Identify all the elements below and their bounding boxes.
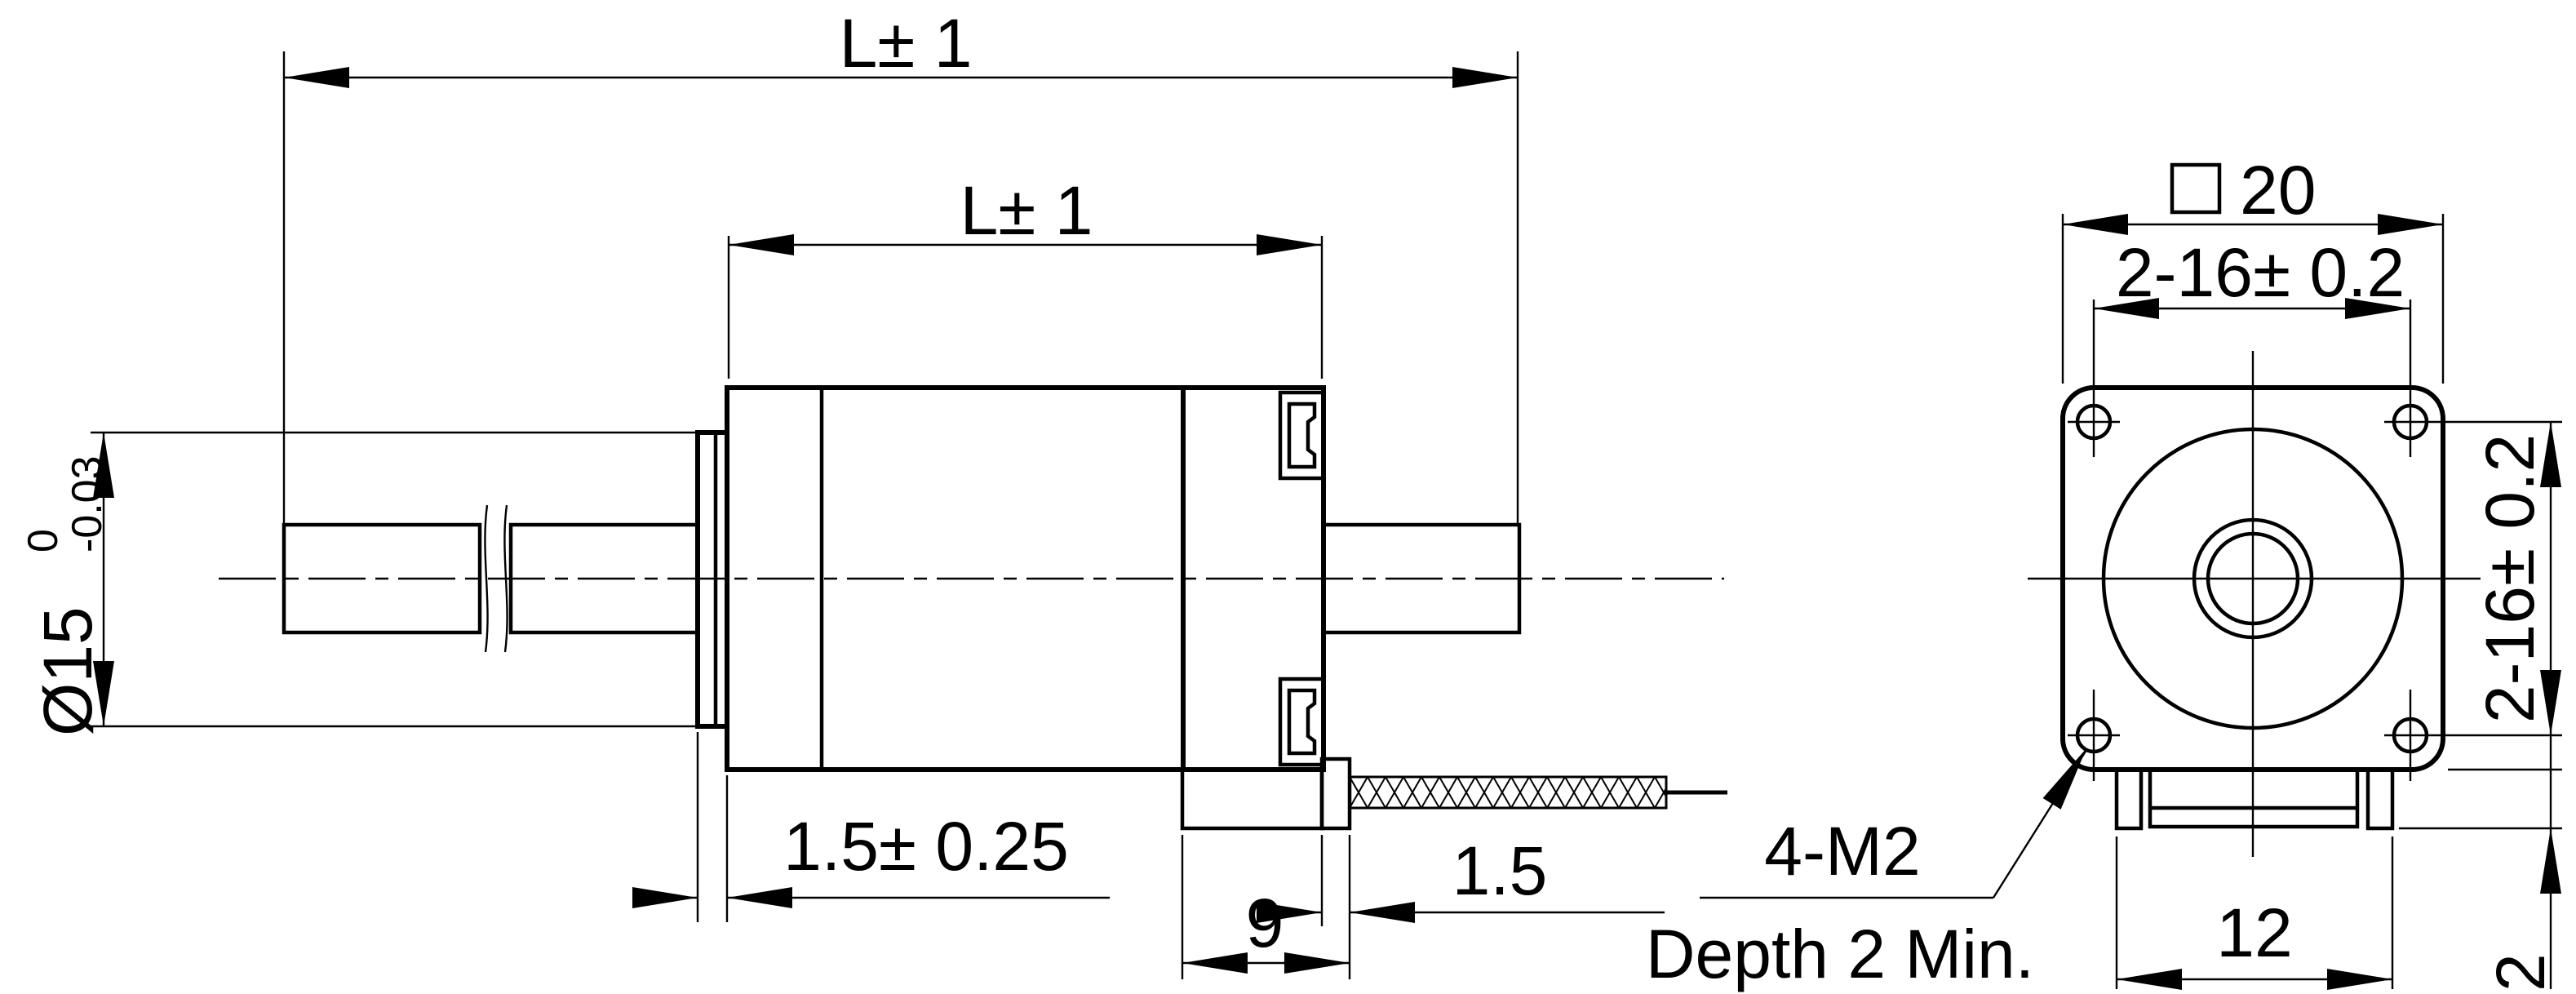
connector-housing (1182, 770, 1322, 828)
dim-connector-width: 12 (2117, 836, 2392, 990)
connector-height-label: 2 (2482, 953, 2559, 992)
dim-boss-thickness: 1.5± 0.25 (632, 732, 1110, 922)
hole-callout-line2: Depth 2 Min. (1646, 916, 2034, 992)
break-line-right (504, 505, 507, 652)
dim-connector-height: 2 (2399, 735, 2562, 992)
engineering-drawing-page: L± 1 L± 1 Ø15 0 -0.03 (0, 0, 2576, 994)
dim-connector-protrusion: 1.5 (1257, 832, 1665, 926)
connector-protrusion-label: 1.5 (1452, 832, 1548, 909)
boss-thickness-label: 1.5± 0.25 (783, 808, 1069, 885)
hole-spacing-vertical-label: 2-16± 0.2 (2472, 434, 2548, 723)
connector-and-cable (1182, 759, 1727, 828)
cable (1350, 777, 1666, 808)
hole-callout-line1: 4-M2 (1764, 813, 1920, 890)
face-width-label: 20 (2240, 152, 2316, 229)
connector-width-label: 12 (2216, 894, 2292, 971)
overall-length-label: L± 1 (840, 5, 973, 82)
screw-diameter-tol-upper: 0 (20, 529, 67, 552)
side-view: L± 1 L± 1 Ø15 0 -0.03 (20, 5, 1727, 979)
front-view: 20 2-16± 0.2 2-16± 0.2 (1646, 152, 2562, 992)
dim-body-length: L± 1 (729, 172, 1322, 379)
body-length-label: L± 1 (960, 172, 1093, 249)
rear-housing-length-label: 9 (1246, 885, 1284, 961)
break-line-left (485, 505, 487, 652)
front-connector (2117, 770, 2392, 828)
technical-drawing: L± 1 L± 1 Ø15 0 -0.03 (0, 0, 2576, 994)
dim-overall-length: L± 1 (284, 5, 1518, 523)
connector-block (1322, 759, 1350, 828)
square-symbol-icon (2172, 165, 2219, 212)
screw-diameter-label: Ø15 (29, 606, 106, 736)
hole-spacing-horizontal-label: 2-16± 0.2 (2116, 234, 2405, 311)
hole-callout: 4-M2 Depth 2 Min. (1646, 743, 2095, 992)
dim-screw-diameter: Ø15 0 -0.03 (20, 433, 696, 736)
screw-diameter-tol-lower: -0.03 (64, 455, 111, 552)
